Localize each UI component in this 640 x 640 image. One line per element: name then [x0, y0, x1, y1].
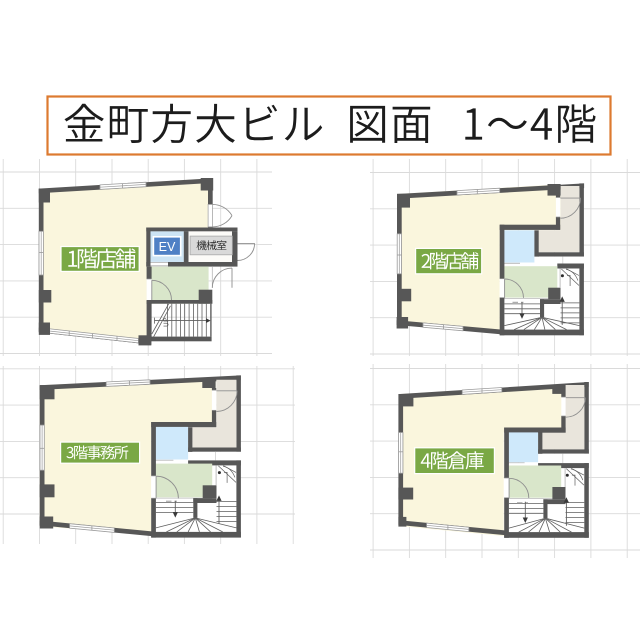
svg-text:EV: EV — [159, 240, 176, 254]
